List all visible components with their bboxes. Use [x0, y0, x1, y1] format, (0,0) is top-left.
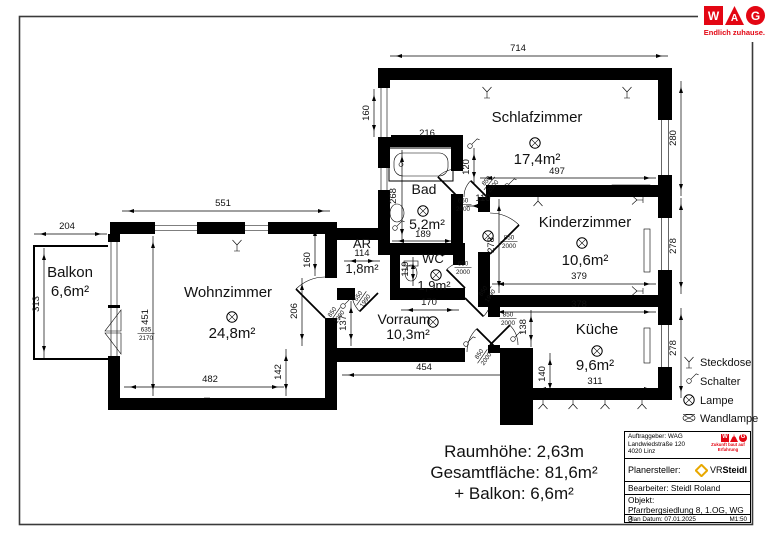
room-area-ar: 1,8m²: [345, 261, 379, 276]
door-width: 850: [504, 235, 515, 242]
plan-date: Plan Datum: 07.01.2025: [628, 516, 696, 523]
lampe-legend-icon: [684, 395, 694, 405]
dimension-label: 160: [302, 252, 313, 268]
dimension: 311: [587, 376, 602, 387]
mini-logo-w: W: [721, 434, 729, 442]
balcony-outline: [34, 246, 108, 359]
legend-label-lampe: Lampe: [700, 395, 734, 407]
room-label-kuche: Küche: [576, 321, 619, 338]
dimension-label: 313: [31, 296, 42, 312]
dimension: 278: [668, 340, 679, 356]
dimension-label: 206: [289, 303, 300, 319]
lampe-icon: [418, 206, 428, 216]
steckdose-icon: [623, 87, 632, 98]
lampe-icon: [577, 238, 587, 248]
title-block-object: Objekt: Pfarrbergsiedlung 8, 1.OG, WG 3: [625, 495, 750, 515]
dimension-label: 142: [273, 364, 284, 380]
door-width: 850: [503, 312, 514, 319]
dimension: 454: [416, 362, 432, 373]
dimension-label: 204: [59, 221, 75, 232]
wag-logo-g: G: [746, 6, 765, 25]
room-area-vorraum: 10,3m²: [386, 326, 430, 342]
dimension-label: 714: [510, 43, 526, 54]
dimension-label: 454: [416, 362, 432, 373]
room-label-kinderzimmer: Kinderzimmer: [539, 214, 632, 231]
dimension-label: 110: [475, 193, 490, 204]
door-height: 2000: [456, 269, 471, 276]
dimension: 451: [140, 309, 151, 325]
vrsteidl-logo: VRSteidl: [695, 464, 747, 477]
room-area-kinderzimmer: 10,6m²: [562, 252, 609, 269]
title-block-date: Plan Datum: 07.01.2025 M1:50: [625, 515, 750, 523]
dimension: 160: [302, 252, 313, 268]
title-block: Auftraggeber: WAG Landwiedstraße 120 402…: [624, 431, 751, 523]
door-width: 650: [458, 261, 469, 268]
dimension-label: 140: [537, 366, 548, 382]
door-size-label: 6352170: [138, 327, 155, 343]
dimension-label: 160: [361, 105, 372, 121]
dimension: 278: [668, 238, 679, 254]
title-block-editor: Bearbeiter: Steidl Roland: [625, 482, 750, 495]
schalter-legend-icon: [687, 374, 699, 384]
door-size-label: 6502000: [455, 261, 472, 277]
door-height: 2000: [456, 206, 471, 213]
room-area-balkon: 6,6m²: [51, 283, 89, 300]
dimension: 160: [361, 105, 372, 121]
room-label-ar: AR: [353, 236, 371, 251]
room-area-bad: 5,2m²: [409, 216, 445, 232]
wag-tagline: Endlich zuhause.: [701, 28, 765, 37]
legend-label-schalter: Schalter: [700, 376, 741, 388]
dimension: 140: [537, 366, 548, 382]
mini-logo-tagline: Zukunft baut auf Erfahrung: [709, 443, 747, 452]
room-area-wohnzimmer: 24,8m²: [209, 325, 256, 342]
plan-scale: M1:50: [729, 516, 747, 523]
plan-summary: Raumhöhe: 2,63m Gesamtfläche: 81,6m² + B…: [408, 441, 620, 504]
dimension-label: 170: [421, 297, 437, 308]
dimension: 120: [461, 159, 472, 175]
dimension-label: 119: [400, 261, 411, 276]
summary-balcony-area: + Balkon: 6,6m²: [408, 483, 620, 504]
floor-plan-page: 7141602164971201102681891191705512043134…: [0, 0, 770, 545]
mini-logo-g: G: [739, 434, 747, 442]
room-label-balkon: Balkon: [47, 264, 93, 281]
room-label-vorraum: Vorraum: [378, 311, 431, 327]
room-label-schlafzimmer: Schlafzimmer: [492, 109, 583, 126]
steckdose-icon: [483, 87, 492, 98]
room-label-bad: Bad: [412, 181, 437, 197]
lampe-icon: [530, 138, 540, 148]
lampe-icon: [227, 312, 237, 322]
steckdose-icon: [632, 287, 643, 296]
radiator-kueche: [644, 328, 650, 363]
room-area-kuche: 9,6m²: [576, 357, 614, 374]
dimension: 110: [475, 193, 490, 204]
title-block-planner: Planersteller: VRSteidl: [625, 459, 750, 482]
legend-label-steckdose: Steckdose: [700, 357, 751, 369]
dimension: 714: [510, 43, 526, 54]
vrsteidl-logo-icon: [695, 464, 708, 477]
editor-value: Bearbeiter: Steidl Roland: [628, 483, 720, 493]
wag-logo-a: A: [725, 6, 744, 25]
wag-mini-logo: W A G Zukunft baut auf Erfahrung: [709, 434, 747, 452]
legend: SteckdoseSchalterLampeWandlampe: [683, 357, 758, 425]
summary-room-height: Raumhöhe: 2,63m: [408, 441, 620, 462]
door-size-label: 6502000: [455, 198, 472, 214]
door-height: 2000: [501, 320, 516, 327]
dimension-label: 278: [668, 238, 679, 254]
door-height: 2170: [139, 335, 154, 342]
dimension: 206: [289, 303, 300, 319]
door-size-label: 8502000: [500, 312, 517, 328]
wag-logo: W A G Endlich zuhause.: [701, 6, 765, 37]
door-height: 2000: [502, 243, 517, 250]
title-block-client: Auftraggeber: WAG Landwiedstraße 120 402…: [625, 432, 750, 459]
dimension: 280: [668, 130, 679, 146]
dimension-label: 551: [215, 198, 231, 209]
dimension: 482: [202, 374, 218, 385]
radiator-kinderzimmer: [644, 229, 650, 272]
schalter-icon: [393, 221, 405, 231]
dimension-label: 268: [388, 188, 399, 204]
dimension: 119: [400, 261, 411, 276]
dimension: 551: [215, 198, 231, 209]
bathtub-drain: [399, 163, 403, 167]
door-width: 635: [141, 327, 152, 334]
dimension-label: 216: [419, 128, 435, 139]
dimension: 142: [273, 364, 284, 380]
wandlampe-legend-icon: [683, 414, 695, 421]
dimension: 170: [421, 297, 437, 308]
dimension-label: 120: [461, 159, 472, 175]
room-label-wohnzimmer: Wohnzimmer: [184, 284, 272, 301]
dimension-label: 378: [571, 299, 587, 310]
room-label-layer: Balkon6,6m²Wohnzimmer24,8m²AR1,8m²Bad5,2…: [47, 109, 631, 374]
summary-total-area: Gesamtfläche: 81,6m²: [408, 462, 620, 483]
dimension-label: 280: [668, 130, 679, 146]
dimension: 379: [571, 271, 587, 282]
door-size-label: 8502000: [501, 235, 518, 251]
legend-label-wandlampe: Wandlampe: [700, 413, 758, 425]
schalter-icon: [468, 139, 480, 149]
dimension: 378: [571, 299, 587, 310]
dimension: 204: [59, 221, 75, 232]
dimension-label: 451: [140, 309, 151, 325]
dimension-label: 482: [202, 374, 218, 385]
dimension: 313: [31, 296, 42, 312]
dimension-label: 278: [668, 340, 679, 356]
planner-label: Planersteller:: [628, 465, 681, 475]
mini-logo-a: A: [730, 434, 738, 442]
room-area-schlafzimmer: 17,4m²: [514, 151, 561, 168]
dimension-label: 379: [571, 271, 587, 282]
steckdose-icon: [233, 240, 242, 251]
dimension: 216: [419, 128, 435, 139]
door-width: 650: [458, 198, 469, 205]
lampe-icon: [592, 346, 602, 356]
wag-logo-w: W: [704, 6, 723, 25]
dimension: 268: [388, 188, 399, 204]
steckdose-legend-icon: [685, 357, 694, 368]
dimension-label: 311: [587, 376, 602, 387]
